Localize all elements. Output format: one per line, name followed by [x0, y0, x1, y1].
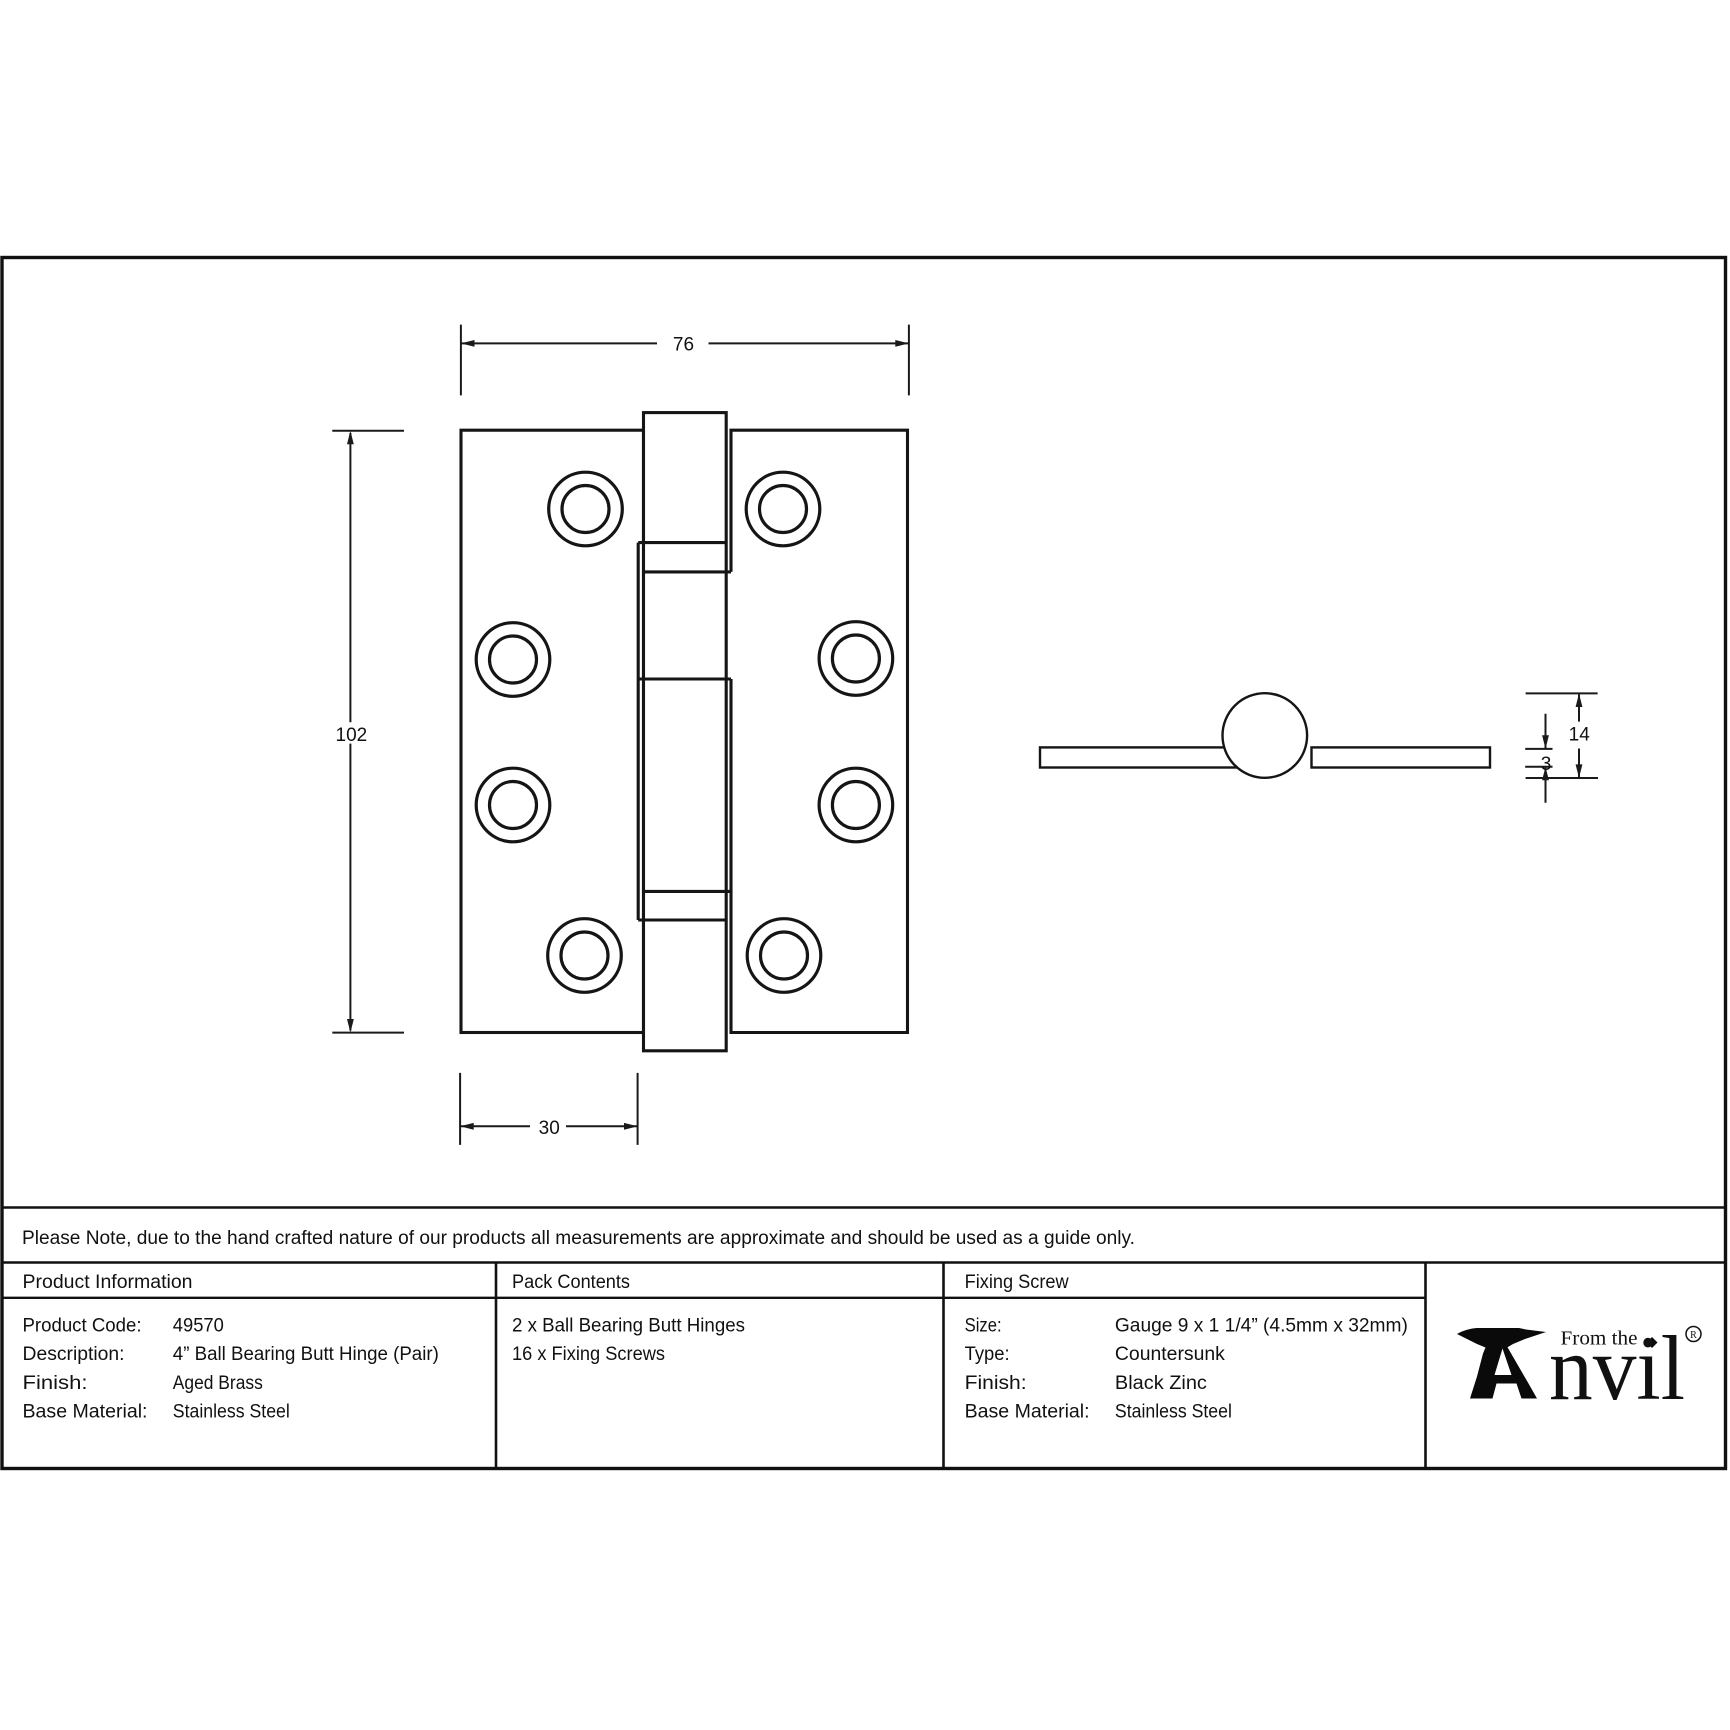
svg-text:76: 76	[673, 334, 694, 355]
svg-text:Please Note, due to the hand c: Please Note, due to the hand crafted nat…	[22, 1228, 1135, 1249]
svg-text:R: R	[1690, 1330, 1697, 1341]
svg-text:3: 3	[1541, 754, 1552, 775]
svg-text:Pack Contents: Pack Contents	[512, 1272, 630, 1293]
svg-text:102: 102	[336, 725, 368, 746]
svg-text:Product Code:: Product Code:	[23, 1316, 142, 1337]
svg-text:30: 30	[539, 1118, 560, 1139]
svg-text:Finish:: Finish:	[965, 1373, 1027, 1394]
svg-text:nvil: nvil	[1549, 1317, 1685, 1419]
svg-text:Stainless Steel: Stainless Steel	[173, 1402, 290, 1423]
svg-text:16 x Fixing Screws: 16 x Fixing Screws	[512, 1344, 665, 1365]
svg-text:Description:: Description:	[23, 1344, 125, 1365]
svg-text:Stainless Steel: Stainless Steel	[1115, 1402, 1232, 1423]
svg-text:49570: 49570	[173, 1316, 224, 1337]
svg-text:Finish:: Finish:	[23, 1373, 88, 1394]
svg-text:Gauge 9 x 1 1/4” (4.5mm x 32mm: Gauge 9 x 1 1/4” (4.5mm x 32mm)	[1115, 1316, 1408, 1337]
svg-text:Black Zinc: Black Zinc	[1115, 1373, 1207, 1394]
svg-text:Base Material:: Base Material:	[965, 1402, 1090, 1423]
svg-text:4” Ball Bearing Butt Hinge (Pa: 4” Ball Bearing Butt Hinge (Pair)	[173, 1344, 439, 1365]
svg-text:Countersunk: Countersunk	[1115, 1344, 1226, 1365]
svg-text:Size:: Size:	[965, 1316, 1002, 1337]
svg-text:Aged Brass: Aged Brass	[173, 1373, 263, 1394]
svg-text:Type:: Type:	[965, 1344, 1010, 1365]
svg-text:2 x Ball Bearing Butt Hinges: 2 x Ball Bearing Butt Hinges	[512, 1316, 745, 1337]
svg-text:Product Information: Product Information	[23, 1272, 193, 1293]
svg-text:Fixing Screw: Fixing Screw	[965, 1272, 1069, 1293]
svg-text:Base Material:: Base Material:	[23, 1402, 148, 1423]
svg-text:14: 14	[1569, 725, 1591, 746]
